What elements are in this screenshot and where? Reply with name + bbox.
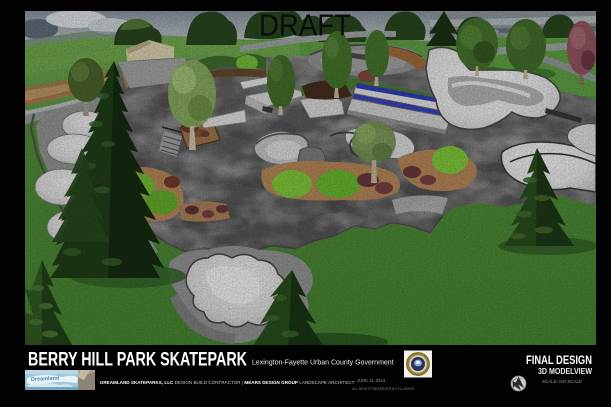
svg-text:Lexington-Fayette Urban County: Lexington-Fayette Urban County Governmen… xyxy=(252,360,394,367)
svg-text:DREAMLAND SKATEPARKS, LLC DESI: DREAMLAND SKATEPARKS, LLC DESIGN BUILD C… xyxy=(100,380,355,385)
svg-text:JUNE 11, 2014: JUNE 11, 2014 xyxy=(357,378,386,383)
svg-text:DRAFT: DRAFT xyxy=(259,8,351,43)
svg-text:SCALE: NO SCALE: SCALE: NO SCALE xyxy=(542,379,582,384)
svg-text:ALL RIGHTS RESERVED BY ELLISON: ALL RIGHTS RESERVED BY ELLISONS xyxy=(352,387,415,391)
svg-text:BERRY HILL PARK SKATEPARK: BERRY HILL PARK SKATEPARK xyxy=(28,350,247,371)
svg-text:3D MODELVIEW: 3D MODELVIEW xyxy=(538,366,593,376)
